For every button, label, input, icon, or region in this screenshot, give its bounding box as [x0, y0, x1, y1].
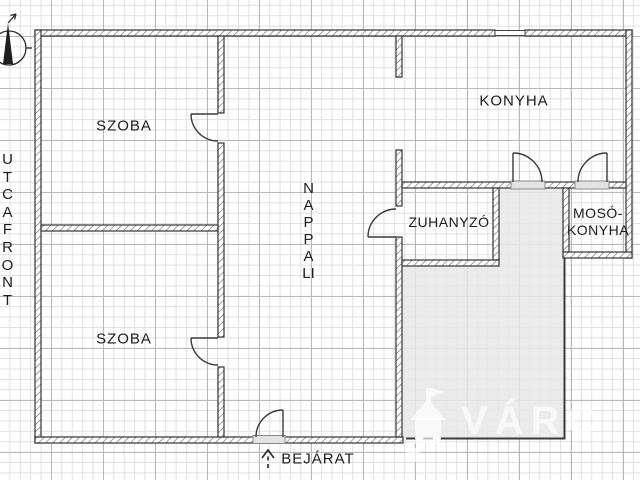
watermark-text: VÁRC	[461, 399, 602, 444]
room-label-zuhanyzo: ZUHANYZÓ	[409, 214, 490, 230]
room-label-moso-line1: MOSÓ-	[567, 205, 629, 222]
room-label-moso-line2: KONYHA	[567, 222, 629, 239]
door-entrance	[256, 410, 283, 437]
room-label-szoba-top: SZOBA	[96, 118, 152, 135]
door-zuhanyzo	[368, 209, 396, 237]
entrance-label: BEJÁRAT	[281, 451, 354, 468]
room-label-nappali: NAPPALI	[301, 180, 316, 282]
north-arrow-icon	[0, 14, 32, 65]
door-szoba-top	[191, 114, 218, 141]
door-konyha-moso	[578, 153, 607, 182]
room-label-konyha: KONYHA	[479, 93, 548, 110]
floor-plan-canvas: UTCAFRONT SZOBA SZOBA NAPPALI KONYHA ZUH…	[0, 0, 640, 480]
entrance-arrow-icon	[262, 450, 274, 468]
door-konyha-corridor	[513, 153, 542, 182]
window-konyha	[495, 31, 525, 36]
door-szoba-bottom	[191, 338, 218, 365]
room-label-szoba-bottom: SZOBA	[96, 331, 152, 348]
street-front-label: UTCAFRONT	[0, 151, 15, 309]
room-label-moso-konyha: MOSÓ- KONYHA	[567, 205, 629, 239]
